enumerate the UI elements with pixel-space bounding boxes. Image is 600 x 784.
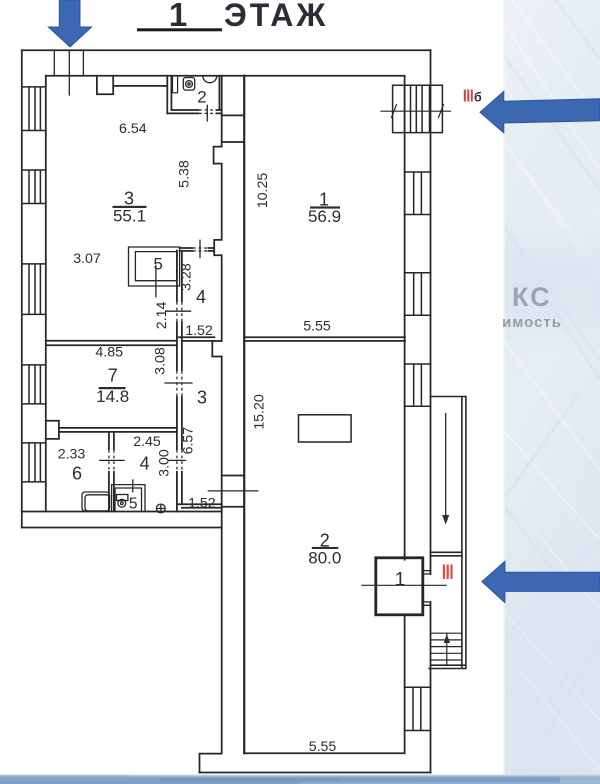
svg-text:5: 5 [153,255,162,274]
svg-text:5: 5 [129,496,138,513]
svg-text:15.20: 15.20 [251,394,267,430]
svg-text:6.57: 6.57 [181,427,197,455]
svg-text:4.85: 4.85 [95,344,123,360]
svg-text:55.1: 55.1 [113,207,146,226]
svg-text:5.38: 5.38 [177,160,193,188]
svg-text:6: 6 [72,463,82,483]
svg-text:2.14: 2.14 [154,301,170,329]
svg-text:2.45: 2.45 [133,434,161,450]
svg-text:б: б [474,91,482,105]
svg-text:4: 4 [196,287,206,307]
svg-text:3.00: 3.00 [156,449,172,477]
svg-text:3.07: 3.07 [73,251,101,267]
svg-text:2: 2 [197,88,206,107]
svg-text:56.9: 56.9 [308,207,341,226]
svg-text:5.55: 5.55 [303,319,331,335]
svg-text:2.33: 2.33 [58,446,86,462]
svg-text:3.28: 3.28 [178,263,194,291]
svg-text:3.08: 3.08 [152,347,168,375]
svg-text:7: 7 [108,366,118,386]
svg-text:3: 3 [197,388,207,408]
svg-text:1: 1 [395,570,406,591]
svg-text:4: 4 [140,454,150,474]
svg-text:имость: имость [502,314,562,331]
svg-text:1.52: 1.52 [188,496,216,512]
svg-text:КС: КС [512,282,552,312]
svg-text:ЭТАЖ: ЭТАЖ [224,0,328,33]
svg-text:10.25: 10.25 [255,173,271,209]
svg-text:6.54: 6.54 [119,121,147,137]
svg-text:1.52: 1.52 [185,323,213,339]
svg-text:5.55: 5.55 [309,739,337,755]
svg-text:14.8: 14.8 [96,387,129,406]
svg-text:1: 1 [169,0,187,33]
svg-text:80.0: 80.0 [308,548,341,567]
